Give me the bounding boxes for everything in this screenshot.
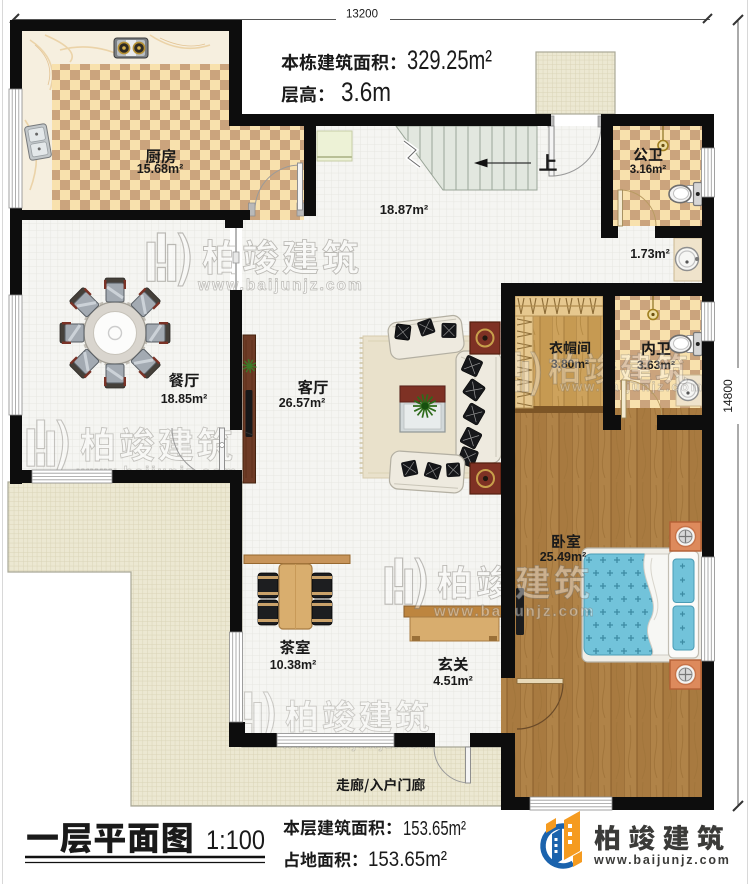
svg-text:25.49m²: 25.49m² [540, 550, 587, 564]
svg-text:www.baijunjz.com: www.baijunjz.com [593, 853, 731, 867]
svg-text:15.68m²: 15.68m² [137, 162, 184, 176]
svg-text:www.baijunjz.com: www.baijunjz.com [197, 277, 364, 294]
svg-text:3.16m²: 3.16m² [630, 164, 667, 176]
svg-text:1.73m²: 1.73m² [630, 247, 670, 261]
svg-text:18.87m²: 18.87m² [380, 202, 429, 217]
svg-text:10.38m²: 10.38m² [270, 658, 317, 672]
svg-text:18.85m²: 18.85m² [161, 392, 208, 406]
svg-text:14800: 14800 [721, 379, 735, 413]
svg-text:www.baijunjz.com: www.baijunjz.com [559, 379, 704, 394]
svg-text:329.25m²: 329.25m² [407, 45, 492, 75]
svg-text:153.65m²: 153.65m² [403, 818, 466, 840]
svg-text:13200: 13200 [346, 9, 378, 21]
svg-text:3.6m: 3.6m [341, 77, 391, 107]
svg-text:4.51m²: 4.51m² [433, 674, 473, 688]
svg-text:1:100: 1:100 [206, 825, 265, 855]
svg-text:26.57m²: 26.57m² [279, 396, 326, 410]
svg-text:153.65m²: 153.65m² [368, 848, 447, 871]
